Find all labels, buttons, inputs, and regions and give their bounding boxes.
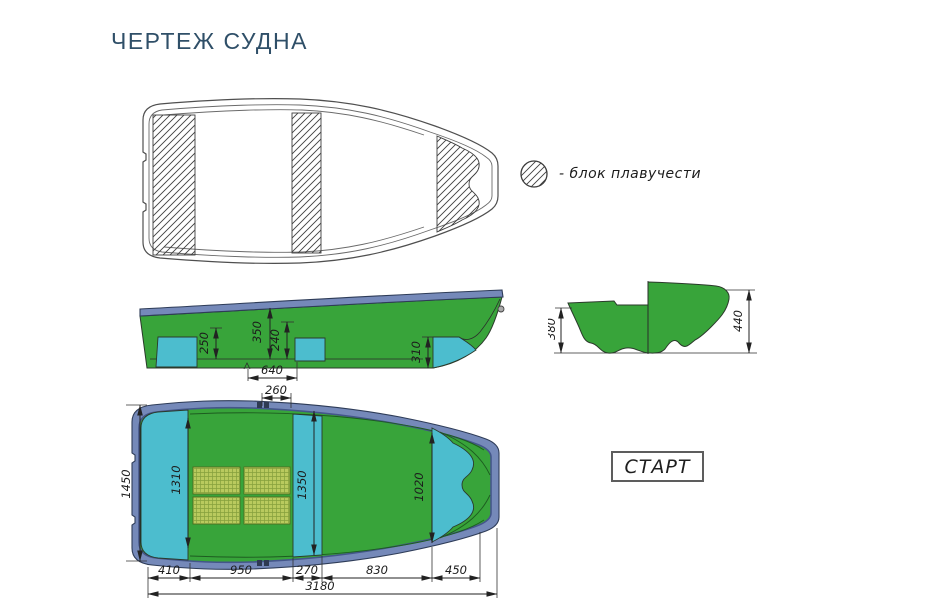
side-view-drawing: 250 350 240 640 310 [138, 282, 520, 390]
dim-label-270: 270 [296, 563, 318, 577]
section-view-drawing: 380 440 [548, 272, 763, 367]
buoyancy-block-stern [153, 115, 195, 255]
dim-label-1020: 1020 [412, 472, 426, 501]
dim-label-410: 410 [158, 563, 180, 577]
buoyancy-block-stern-side [156, 337, 197, 367]
blueprint-page: { "title": "ЧЕРТЕЖ СУДНА", "legend": { "… [0, 0, 930, 615]
section-aft-half [568, 301, 648, 353]
section-fwd-half [648, 282, 729, 353]
dim-label-440: 440 [731, 310, 745, 332]
dim-label-240: 240 [268, 329, 282, 351]
buoyancy-blocks-hatched [153, 113, 479, 255]
buoyancy-block-icon [518, 158, 550, 190]
dim-label-640: 640 [261, 363, 283, 377]
dim-label-310: 310 [409, 341, 423, 363]
dim-label-830: 830 [366, 563, 388, 577]
top-view-drawing [140, 96, 510, 268]
dim-label-260: 260 [265, 383, 287, 397]
model-name-box: СТАРТ [611, 451, 704, 482]
legend: - блок плавучести [518, 158, 701, 190]
dim-label-1350: 1350 [295, 470, 309, 499]
page-title: ЧЕРТЕЖ СУДНА [111, 28, 308, 55]
legend-label: - блок плавучести [559, 166, 701, 182]
buoyancy-block-middle [292, 113, 321, 253]
dim-label-1450: 1450 [120, 469, 133, 498]
dim-label-1310: 1310 [169, 465, 183, 494]
dim-label-450: 450 [445, 563, 467, 577]
dim-label-350: 350 [250, 321, 264, 343]
buoyancy-block-middle-side [295, 338, 325, 361]
bow-eye [498, 306, 504, 312]
buoyancy-block-bow [437, 136, 479, 232]
dim-label-250: 250 [197, 332, 211, 354]
dim-label-380: 380 [548, 318, 558, 340]
model-name-label: СТАРТ [625, 456, 691, 478]
dim-label-3180: 3180 [305, 579, 334, 593]
plan-view-drawing: 260 1450 1310 1350 1020 410 950 270 830 … [120, 380, 516, 608]
dim-label-950: 950 [230, 563, 252, 577]
